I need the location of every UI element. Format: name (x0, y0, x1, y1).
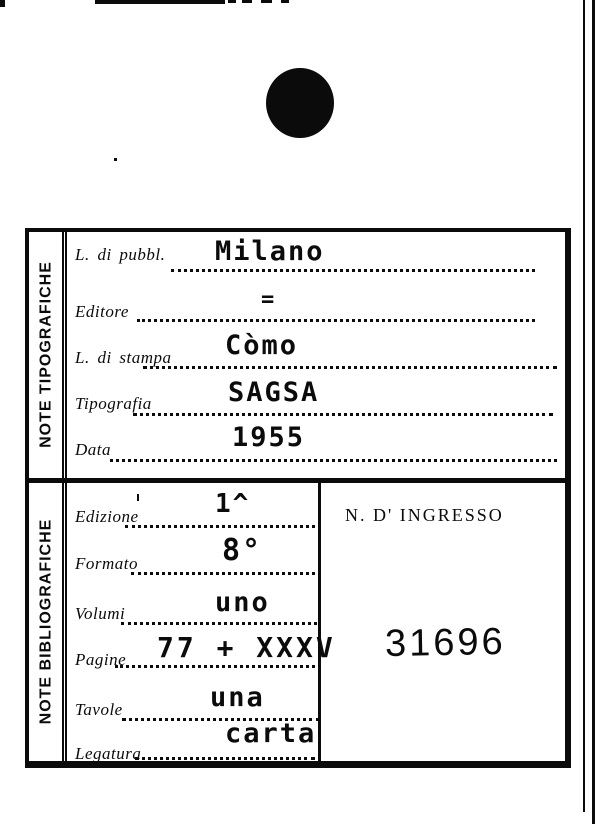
scan-edge-line (592, 0, 595, 824)
catalog-card: NOTE TIPOGRAFICHE NOTE BIBLIOGRAFICHE L.… (25, 228, 571, 768)
dotted-rule (125, 525, 315, 528)
scan-artifact-dash (281, 0, 289, 3)
ingresso-number: 31696 (385, 621, 506, 666)
scan-artifact-dash (261, 0, 272, 3)
field-label-tipografia: Tipografia (75, 394, 152, 414)
scan-artifact-corner-speck (0, 0, 5, 7)
dotted-rule (133, 413, 553, 416)
scan-artifact-speck (114, 158, 117, 161)
field-value-l-di-pubbl: Milano (215, 236, 325, 267)
note-bibliografiche-label: NOTE BIBLIOGRAFICHE (30, 483, 63, 761)
field-value-volumi: uno (215, 587, 270, 618)
field-label-data: Data (75, 440, 111, 460)
dotted-rule (131, 572, 315, 575)
field-value-edizione: 1^ (215, 489, 250, 519)
field-value-pagine: 77 + XXXV (157, 631, 336, 664)
note-tipografiche-label: NOTE TIPOGRAFICHE (30, 232, 63, 478)
dotted-rule (110, 459, 557, 462)
scan-edge-line (583, 0, 585, 812)
scan-artifact-dash (228, 0, 236, 3)
field-value-editore: = (261, 287, 276, 312)
field-value-tipografia: SAGSA (228, 377, 319, 408)
field-label-volumi: Volumi (75, 604, 125, 624)
field-label-l-di-pubbl: L. di pubbl. (75, 245, 165, 265)
field-label-editore: Editore (75, 302, 129, 322)
dotted-rule (143, 366, 557, 369)
dotted-rule (135, 757, 315, 760)
note-bibliografiche-strip: NOTE BIBLIOGRAFICHE (29, 483, 67, 761)
field-label-tavole: Tavole (75, 700, 123, 720)
ingresso-label: N. D' INGRESSO (345, 505, 504, 526)
dotted-rule (121, 622, 317, 625)
dotted-rule (171, 269, 535, 272)
dotted-rule (115, 665, 321, 668)
field-value-formato: 8° (222, 533, 262, 568)
dotted-rule (137, 319, 535, 322)
field-value-tavole: una (210, 682, 265, 713)
hole-punch-dot (266, 68, 334, 138)
field-label-formato: Formato (75, 554, 138, 574)
field-label-legatura: Legatura (75, 744, 141, 764)
field-label-l-di-stampa: L. di stampa (75, 348, 172, 368)
scan-artifact-top-bar (95, 0, 225, 4)
field-value-data: 1955 (232, 422, 305, 453)
field-label-edizione: Edizione (75, 507, 139, 527)
scanned-catalog-card-page: NOTE TIPOGRAFICHE NOTE BIBLIOGRAFICHE L.… (0, 0, 601, 824)
field-value-legatura: carta (225, 718, 316, 749)
note-tipografiche-strip: NOTE TIPOGRAFICHE (29, 232, 67, 478)
field-value-l-di-stampa: Còmo (225, 330, 298, 361)
scan-artifact-dash (242, 0, 252, 3)
section-divider-horizontal (25, 478, 568, 483)
